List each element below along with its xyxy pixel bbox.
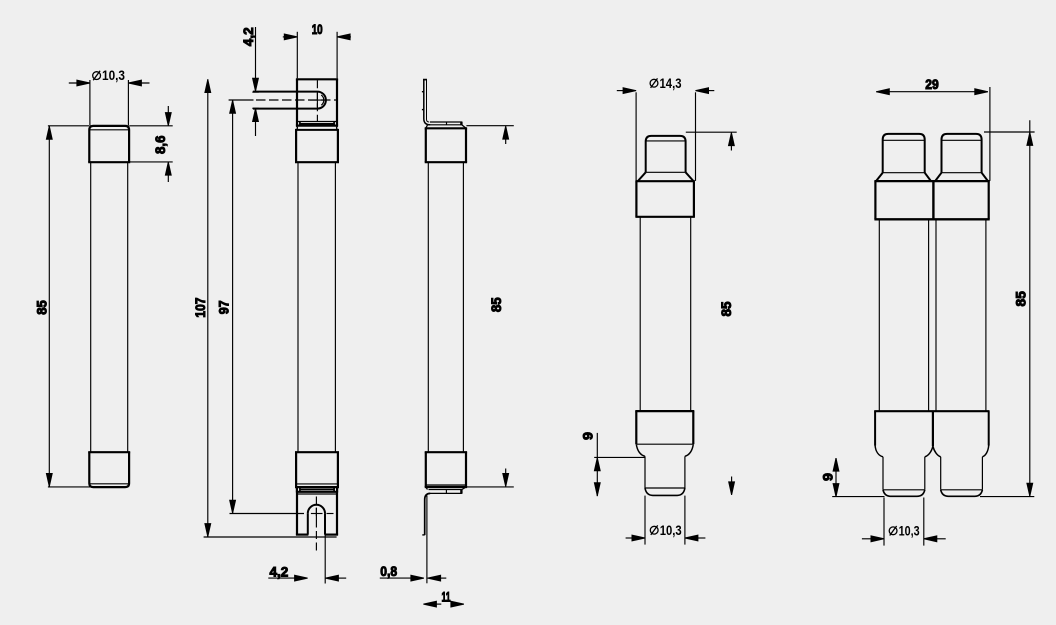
svg-text:107: 107 bbox=[193, 298, 208, 318]
svg-text:10,3: 10,3 bbox=[660, 523, 682, 538]
svg-text:10: 10 bbox=[312, 22, 323, 37]
svg-text:4,2: 4,2 bbox=[241, 27, 256, 46]
svg-text:11: 11 bbox=[442, 590, 451, 605]
svg-text:0,8: 0,8 bbox=[380, 564, 397, 579]
svg-text:97: 97 bbox=[217, 300, 232, 314]
svg-text:9: 9 bbox=[580, 432, 595, 440]
svg-text:85: 85 bbox=[719, 301, 734, 316]
svg-text:14,3: 14,3 bbox=[660, 76, 682, 91]
svg-text:9: 9 bbox=[821, 473, 836, 481]
svg-text:29: 29 bbox=[925, 77, 939, 92]
svg-text:10,3: 10,3 bbox=[102, 68, 125, 83]
svg-text:4,2: 4,2 bbox=[270, 564, 289, 579]
svg-text:85: 85 bbox=[489, 297, 504, 312]
svg-text:10,3: 10,3 bbox=[899, 524, 920, 539]
svg-text:8,6: 8,6 bbox=[153, 135, 168, 154]
svg-text:85: 85 bbox=[1013, 291, 1028, 307]
svg-text:85: 85 bbox=[35, 300, 50, 315]
